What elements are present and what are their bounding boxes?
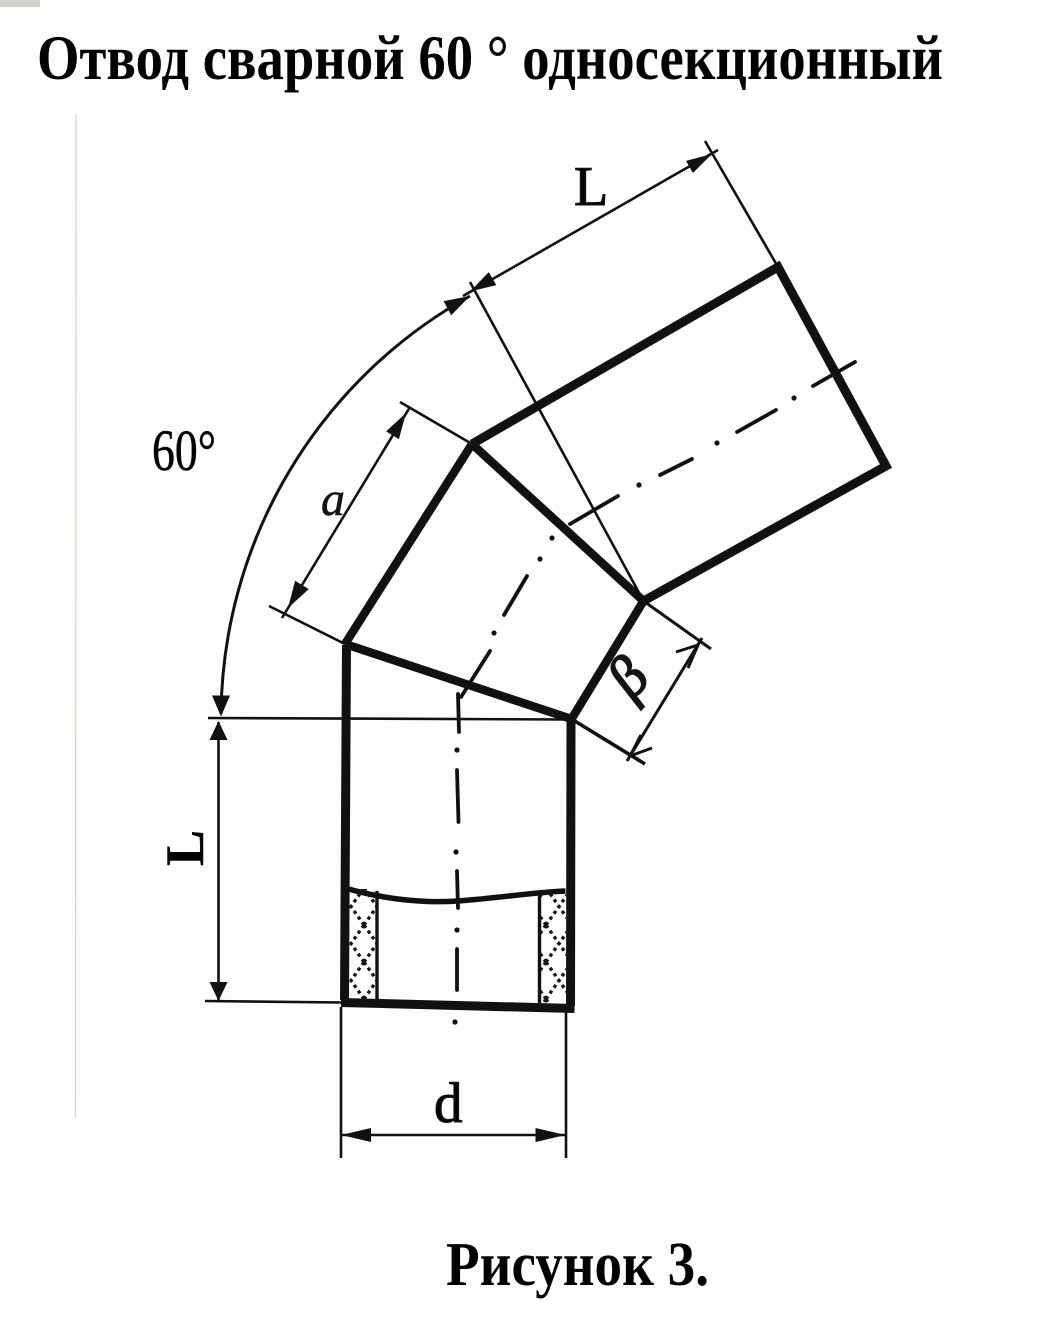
svg-text:60°: 60° (152, 418, 216, 483)
svg-text:L: L (574, 156, 608, 218)
svg-text:L: L (155, 830, 215, 866)
svg-text:d: d (434, 1072, 463, 1135)
svg-text:Рисунок 3.: Рисунок 3. (446, 1231, 709, 1299)
svg-text:Отвод сварной 60 ° односекцион: Отвод сварной 60 ° односекционный (37, 22, 943, 93)
